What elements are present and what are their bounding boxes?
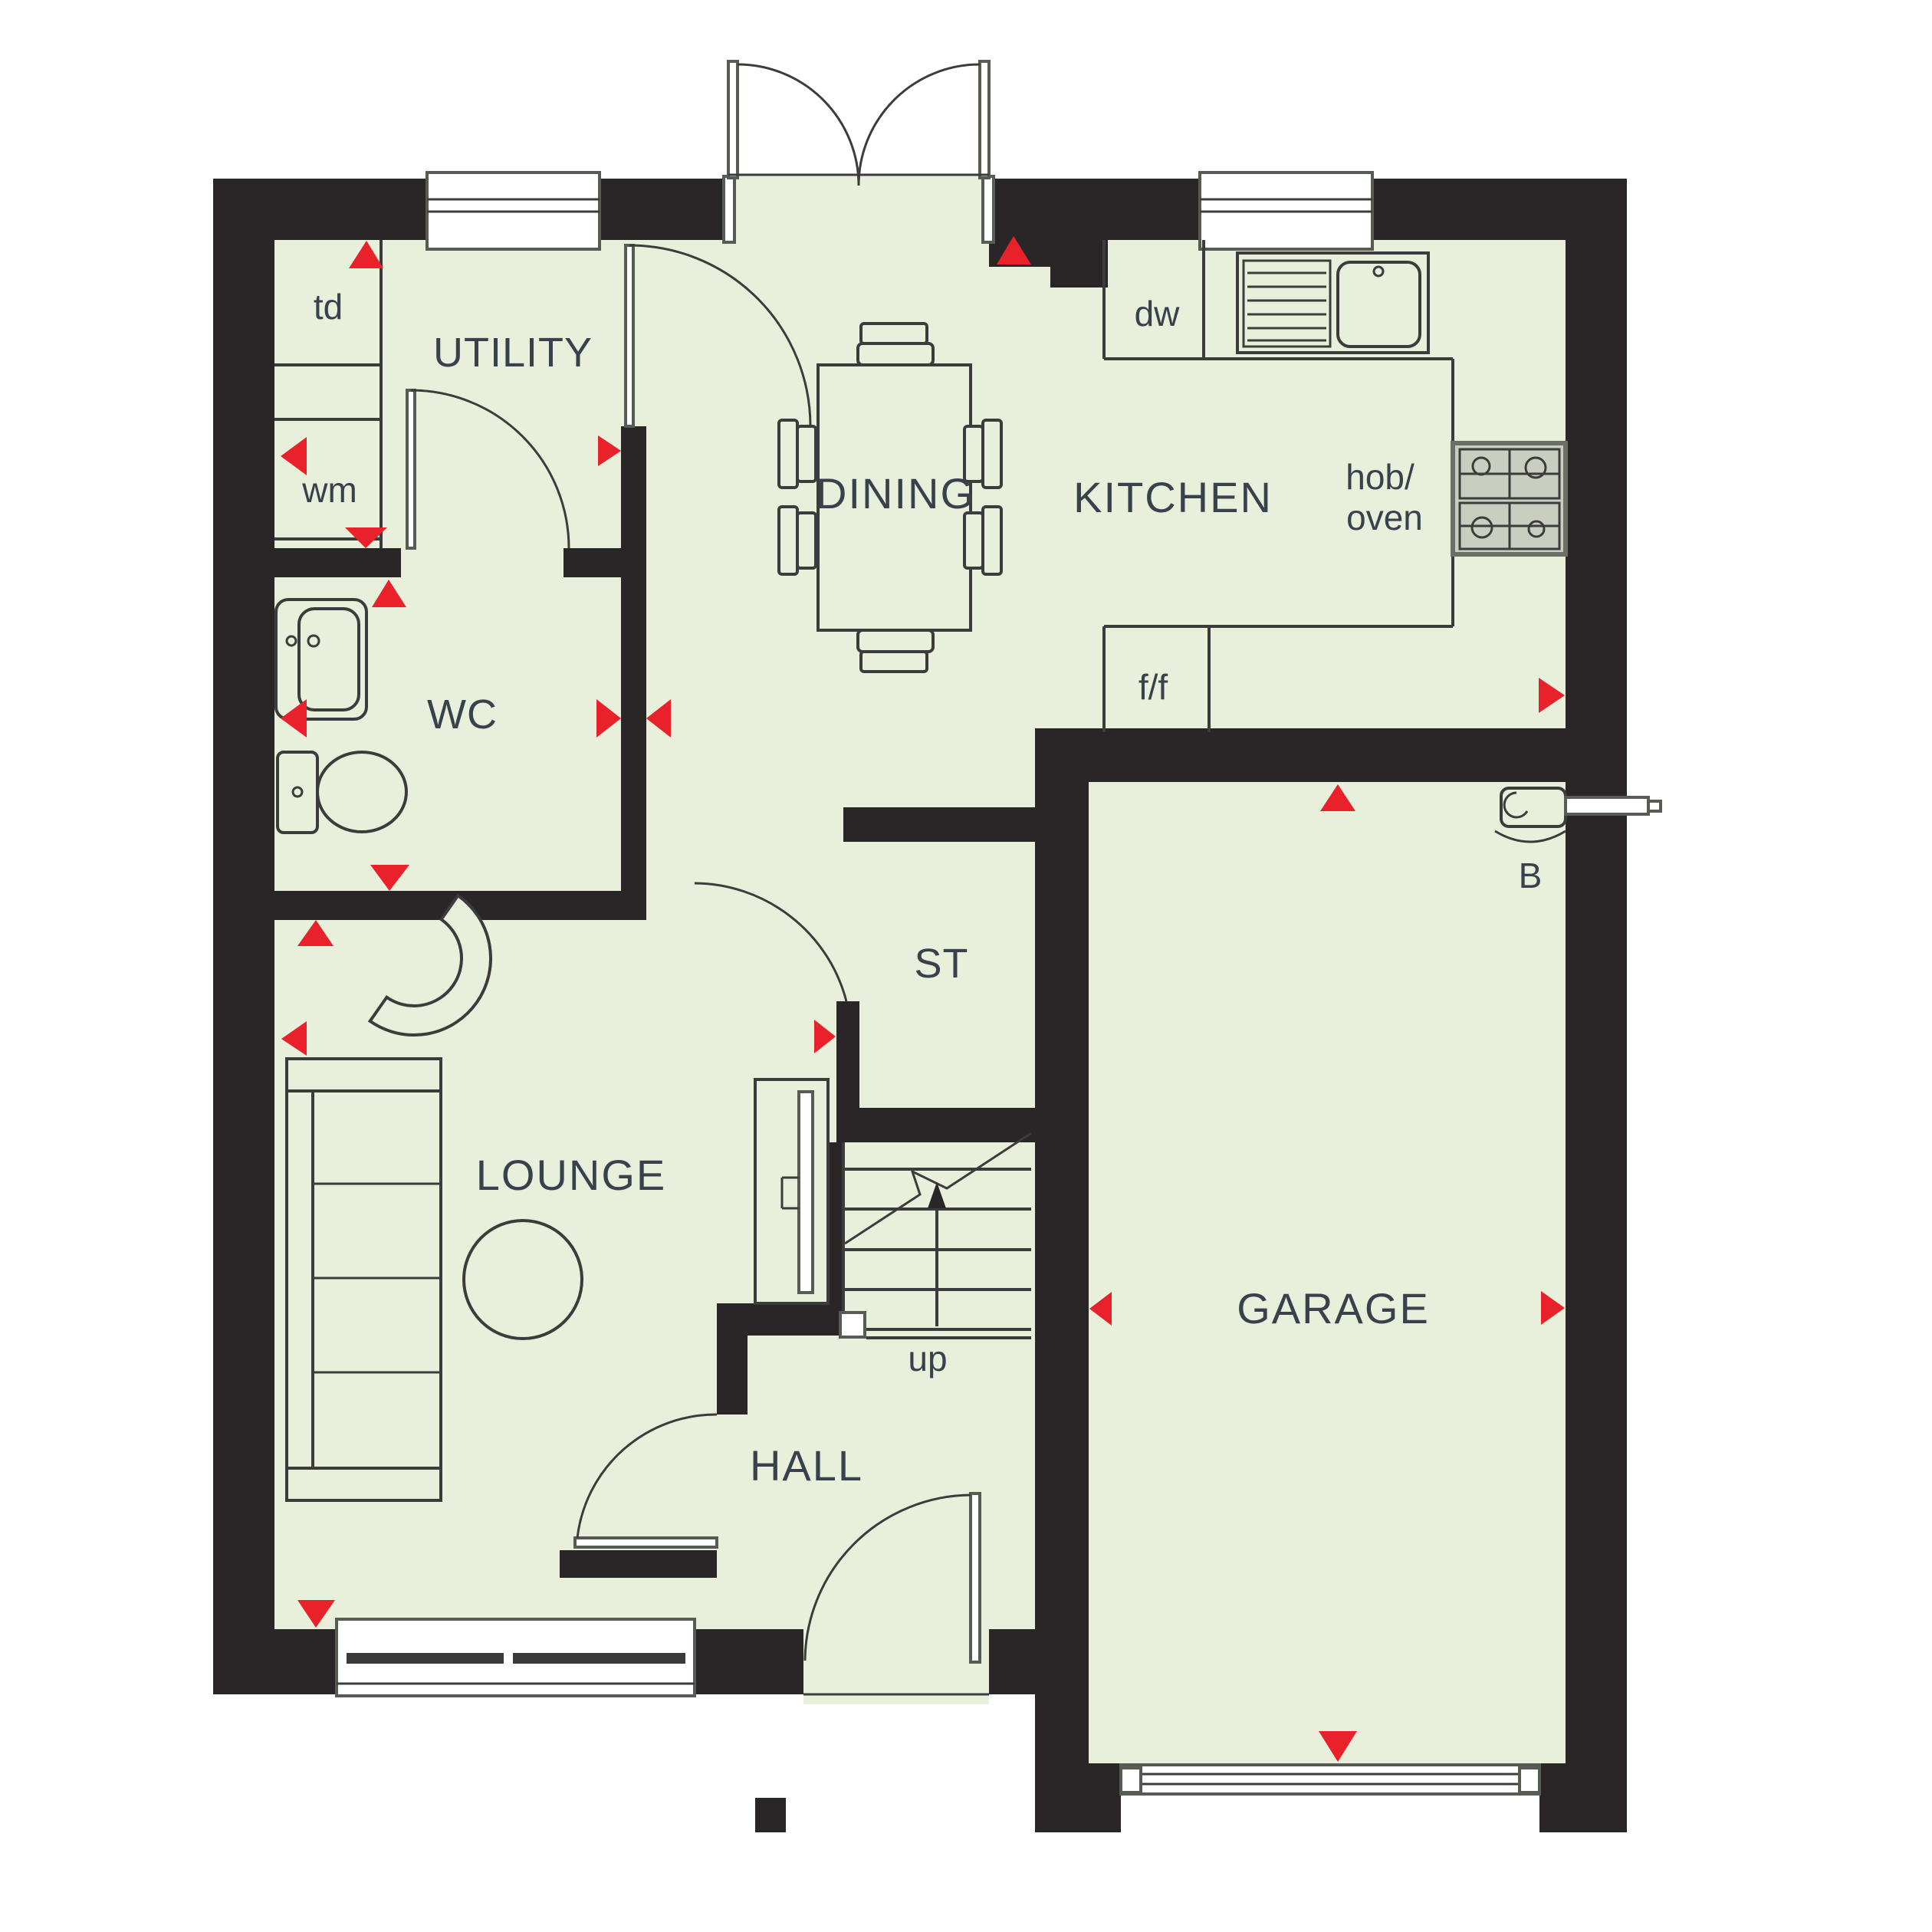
wall-utility-bottom [274, 548, 401, 577]
store-label: ST [914, 941, 968, 987]
wall-pillar-kitchen [1050, 240, 1108, 287]
dishwasher-label: dw [1135, 294, 1181, 333]
wall-left [213, 179, 274, 1694]
wall-utility-bottom-stub [563, 548, 623, 577]
dining-chair-bottom [858, 630, 933, 672]
washing-machine-label: wm [301, 470, 357, 510]
stairs-up-label: up [908, 1339, 947, 1378]
wc-label: WC [427, 692, 498, 738]
tumble-dryer-label: td [314, 287, 343, 327]
kitchen-label: KITCHEN [1073, 473, 1273, 521]
lounge-label: LOUNGE [476, 1151, 667, 1199]
hall-label: HALL [750, 1441, 863, 1490]
wall-store-left [836, 1001, 859, 1108]
wall-south-1 [213, 1629, 337, 1694]
hob-oven-symbol [1453, 443, 1566, 554]
hob-oven-label-1: hob/ [1345, 457, 1414, 497]
wall-hall-west [717, 1303, 747, 1414]
floor-plan-drawing: UTILITY td wm WC DINING KITCHEN hob/ ove… [0, 0, 1932, 1932]
garage-door-pier-left [1089, 1763, 1121, 1832]
wall-top-3 [989, 179, 1200, 240]
side-table [464, 1221, 582, 1339]
lounge-window [337, 1619, 695, 1696]
sofa [287, 1059, 441, 1500]
sink-symbol [1237, 253, 1428, 353]
media-unit [755, 1079, 828, 1303]
wall-lounge-hall-stub [560, 1550, 717, 1578]
floor-plan-page: UTILITY td wm WC DINING KITCHEN hob/ ove… [0, 0, 1932, 1932]
front-door-threshold [803, 1629, 989, 1704]
utility-window [427, 172, 600, 249]
garage-floor [1089, 782, 1566, 1767]
wall-garage-west [1035, 728, 1089, 1832]
wall-top-2 [600, 179, 728, 240]
dining-label: DINING [816, 469, 975, 517]
wall-stairs-left [828, 1142, 843, 1313]
dining-chair-left-1 [779, 420, 816, 488]
wall-store-bottom [836, 1108, 1035, 1142]
garage-door [1121, 1765, 1539, 1794]
toilet-symbol [278, 752, 406, 833]
boiler-label: B [1519, 856, 1543, 895]
wall-corridor [621, 426, 646, 920]
wall-south-2 [695, 1629, 803, 1694]
porch-pillar [755, 1798, 786, 1832]
dining-chair-left-2 [779, 507, 816, 574]
dining-chair-top [858, 324, 933, 365]
kitchen-window [1200, 172, 1372, 249]
wall-kitchen-garage [1035, 728, 1627, 782]
wall-wc-bottom [213, 891, 646, 920]
garage-label: GARAGE [1237, 1284, 1430, 1332]
basin-symbol [276, 600, 366, 719]
wall-right [1566, 179, 1627, 1832]
utility-label: UTILITY [433, 330, 593, 376]
fridge-freezer-label: f/f [1138, 667, 1168, 707]
hob-oven-label-2: oven [1346, 498, 1423, 537]
stair-newel [840, 1313, 865, 1337]
wall-south-3 [989, 1629, 1035, 1694]
wall-store-top [843, 807, 1035, 842]
garage-door-pier-right [1539, 1763, 1566, 1832]
